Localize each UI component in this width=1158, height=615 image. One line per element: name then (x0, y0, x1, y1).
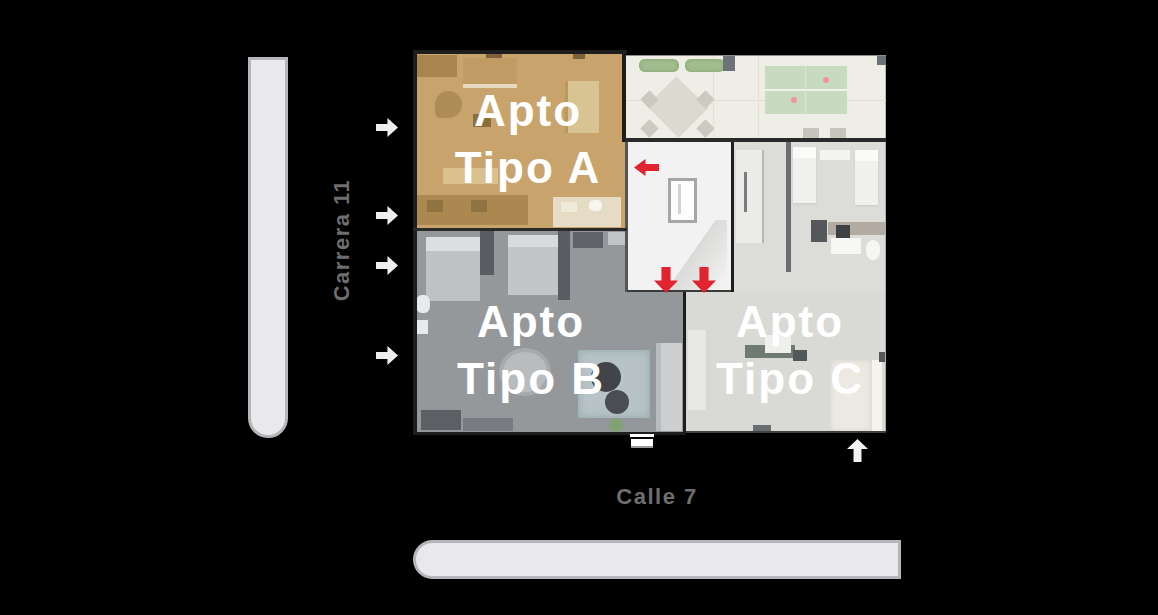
wall (625, 138, 886, 142)
street-label-calle-7: Calle 7 (616, 484, 697, 510)
sofa-shape (656, 343, 682, 431)
furniture-shape (416, 320, 428, 334)
plant-shape (609, 418, 623, 432)
furniture-shape (831, 238, 861, 254)
street-bar-calle-7 (413, 540, 901, 579)
furniture-shape (463, 418, 513, 431)
wall-block (723, 56, 735, 71)
wall (731, 142, 734, 292)
floorplan-scene: Carrera 11 Calle 7 (0, 0, 1158, 615)
wall-block (558, 230, 570, 300)
wall (625, 142, 628, 292)
wall-block (879, 352, 885, 362)
furniture-shape (427, 200, 443, 212)
street-label-carrera-11: Carrera 11 (329, 179, 355, 302)
pingpong-table (765, 66, 847, 114)
furniture-shape (421, 410, 461, 430)
furniture-shape (561, 202, 577, 212)
apartment-a-label: Apto Tipo A (455, 82, 601, 196)
apartment-b-label-line2: Tipo B (457, 350, 605, 407)
street-direction-arrow-icon (376, 206, 398, 225)
furniture-shape (820, 150, 850, 160)
plant-shape (685, 59, 725, 72)
closet-shape (736, 150, 764, 243)
apartment-a-label-line2: Tipo A (455, 139, 601, 196)
bed-shape (855, 150, 878, 205)
wall (683, 292, 686, 433)
building-floorplan: Apto Tipo A Apto Tipo B Apto Tipo C (413, 50, 886, 435)
wall-block (811, 220, 827, 242)
wall-block (480, 230, 494, 275)
apartment-c-label-line1: Apto (716, 293, 864, 350)
street-bar-carrera-11 (248, 57, 288, 438)
street-direction-arrow-icon (376, 118, 398, 137)
furniture-shape (416, 295, 430, 313)
entrance-step-marker (631, 439, 653, 448)
apartment-c-label: Apto Tipo C (716, 293, 864, 407)
sofa-shape (688, 330, 710, 410)
wall (413, 228, 627, 231)
wall-block (877, 56, 886, 65)
furniture-shape (471, 200, 487, 212)
entrance-step-marker (630, 434, 654, 437)
furniture-shape (589, 200, 602, 211)
furniture-shape (696, 119, 714, 137)
wall (686, 431, 886, 433)
furniture-shape (758, 56, 759, 141)
pingpong-ball (791, 97, 797, 103)
terrace-region (625, 55, 886, 140)
wall (622, 50, 626, 142)
street-direction-arrow-icon (376, 256, 398, 275)
plant-shape (639, 59, 679, 72)
elevator-shape (668, 178, 697, 223)
wall-block (786, 142, 791, 272)
building-entrance-arrow-icon (847, 439, 868, 462)
furniture-shape (866, 240, 880, 260)
pingpong-ball (823, 77, 829, 83)
apartment-b-label-line1: Apto (457, 293, 605, 350)
furniture-shape (640, 119, 658, 137)
furniture-shape (417, 55, 457, 77)
bed-shape (426, 237, 480, 301)
apartment-c-region-upper[interactable] (734, 142, 886, 292)
furniture-shape (744, 172, 747, 212)
apartment-b-label: Apto Tipo B (457, 293, 605, 407)
furniture-shape (573, 232, 603, 248)
street-direction-arrow-icon (376, 346, 398, 365)
wall (627, 290, 731, 292)
chair-shape (605, 390, 629, 414)
apartment-a-label-line1: Apto (455, 82, 601, 139)
furniture-shape (836, 225, 850, 238)
bed-shape (508, 235, 558, 295)
wall (413, 50, 417, 435)
bed-shape (793, 147, 816, 203)
wall (413, 50, 627, 54)
apartment-c-label-line2: Tipo C (716, 350, 864, 407)
